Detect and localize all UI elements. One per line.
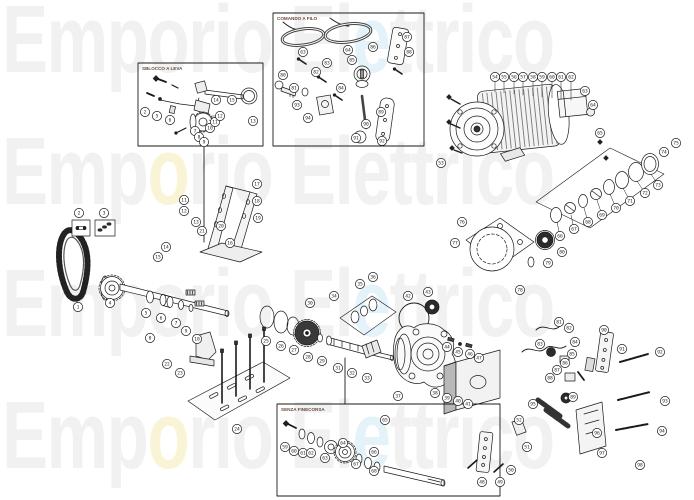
callout-number: 61	[300, 451, 306, 457]
callout-number: 2	[144, 110, 147, 116]
inset-cable-release: COMANDO A FILO	[273, 13, 424, 146]
callout-number: 90	[363, 122, 369, 128]
callout-number: 16	[227, 241, 233, 247]
callout-number: 95	[530, 402, 536, 408]
callout-number: 85	[569, 352, 575, 358]
callout-number: 86	[562, 361, 568, 367]
callout-number: 55	[501, 75, 507, 81]
callout-number: 74	[661, 150, 667, 156]
callout-number: 63	[322, 456, 328, 462]
callout-number: 90	[601, 328, 607, 334]
callout-number: 61	[558, 75, 564, 81]
callout-number: 81	[291, 86, 297, 92]
callout-number: 94	[305, 116, 311, 122]
callout-number: 41	[465, 402, 471, 408]
callout-number: 9	[203, 140, 206, 146]
callout-number: 91	[353, 136, 359, 142]
callout-number: 91	[619, 347, 625, 353]
callout-number: 32	[349, 371, 355, 377]
callout-number: 1	[77, 305, 80, 311]
callout-number: 97	[599, 451, 605, 457]
callout-number: 39	[444, 396, 450, 402]
callout-number: 10	[194, 337, 200, 343]
callout-number: 64	[345, 48, 351, 54]
callout-number: 87	[554, 368, 560, 374]
inset-label-comando: COMANDO A FILO	[277, 16, 318, 21]
callout-number: 88	[406, 50, 412, 56]
callout-number: 7	[175, 321, 178, 327]
callout-number: 56	[511, 75, 517, 81]
callout-number: 34	[331, 294, 337, 300]
callout-number: 73	[655, 183, 661, 189]
gearbox-housing	[362, 300, 455, 387]
callout-number: 71	[627, 199, 633, 205]
callout-number: 6	[160, 316, 163, 322]
callout-number: 64	[590, 103, 596, 109]
callout-number: 52	[516, 418, 522, 424]
callout-number: 48	[479, 480, 485, 486]
bell-cover-and-flange	[466, 218, 555, 271]
callout-number: 2	[78, 211, 81, 217]
callout-number: 13	[193, 220, 199, 226]
inset-label-sblocco: SBLOCCO A LEVA	[142, 66, 183, 71]
callout-number: 15	[229, 98, 235, 104]
callout-number: 72	[642, 191, 648, 197]
callout-number: 17	[254, 182, 260, 188]
roller-chain	[59, 230, 88, 299]
inset-label-finecorsa: SENZA FINECORSA	[281, 407, 325, 412]
callout-number: 68	[371, 469, 377, 475]
callout-number: 54	[492, 75, 498, 81]
callout-number: 29	[319, 359, 325, 365]
callout-number: 38	[432, 391, 438, 397]
callout-number: 33	[364, 376, 370, 382]
callout-number: 82	[313, 70, 319, 76]
callout-number: 62	[568, 75, 574, 81]
callout-number: 15	[155, 255, 161, 261]
callout-number: 57	[520, 75, 526, 81]
callout-number: 84	[572, 340, 578, 346]
callout-number: 6	[169, 118, 172, 124]
callout-number: 66	[371, 450, 377, 456]
callout-number: 87	[404, 35, 410, 41]
callout-number: 88	[547, 376, 553, 382]
callout-number: 78	[517, 288, 523, 294]
callout-number: 53	[438, 161, 444, 167]
callout-number: 11	[212, 120, 218, 126]
callout-number: 18	[254, 199, 260, 205]
callout-number: 82	[566, 326, 572, 332]
callout-number: 63	[582, 89, 588, 95]
callout-number: 76	[459, 220, 465, 226]
callout-number: 42	[405, 294, 411, 300]
callout-number: 5	[145, 311, 148, 317]
callout-number: 96	[594, 431, 600, 437]
callout-number: 66	[557, 234, 563, 240]
callout-number: 31	[335, 366, 341, 372]
callout-number: 83	[537, 342, 543, 348]
callout-number: 13	[250, 119, 256, 125]
callout-number: 59	[539, 75, 545, 81]
callout-number: 50	[508, 468, 514, 474]
callout-number: 45	[455, 350, 461, 356]
callout-number: 37	[395, 394, 401, 400]
callout-number: 23	[177, 371, 183, 377]
callout-number: 36	[370, 275, 376, 281]
callout-number: 35	[357, 282, 363, 288]
callout-number: 14	[213, 98, 219, 104]
callout-number: 3	[103, 211, 106, 217]
callout-number: 44	[444, 345, 450, 351]
callout-number: 28	[305, 355, 311, 361]
callout-number: 80	[559, 250, 565, 256]
callout-number: 94	[659, 429, 665, 435]
callout-number: 81	[556, 320, 562, 326]
callout-number: 67	[353, 462, 359, 468]
callout-number: 69	[599, 213, 605, 219]
callout-number: 11	[181, 198, 187, 204]
callout-number: 40	[455, 399, 461, 405]
callout-number: 89	[570, 395, 576, 401]
callout-number: 98	[637, 463, 643, 469]
callout-number: 19	[255, 216, 261, 222]
callout-number: 49	[497, 480, 503, 486]
callout-number: 24	[234, 427, 240, 433]
callout-number: 67	[571, 227, 577, 233]
callout-number: 20	[218, 224, 224, 230]
callout-number: 68	[585, 220, 591, 226]
callout-number: 58	[530, 75, 536, 81]
callout-number: 60	[291, 449, 297, 455]
exploded-parts-diagram: Emporio ElettricoEmporio ElettricoEmpori…	[0, 0, 694, 500]
callout-number: 30	[307, 301, 313, 307]
callout-number: 60	[549, 75, 555, 81]
callout-number: 4	[109, 301, 112, 307]
callout-number: 79	[545, 261, 551, 267]
diagram-canvas: SBLOCCO A LEVA	[0, 0, 694, 500]
callout-number: 93	[294, 103, 300, 109]
chain-link-detail-boxes	[72, 220, 115, 236]
callout-number: 92	[379, 139, 385, 145]
callout-number: 59	[282, 445, 288, 451]
callout-number: 70	[613, 206, 619, 212]
callout-number: 25	[263, 339, 269, 345]
base-plate	[188, 327, 290, 420]
callout-number: 9	[185, 329, 188, 335]
callout-number: 93	[662, 399, 668, 405]
callout-number: 86	[370, 45, 376, 51]
callout-number: 92	[657, 350, 663, 356]
callout-number: 27	[291, 348, 297, 354]
callout-number: 83	[324, 61, 330, 67]
callout-number: 12	[181, 209, 187, 215]
callout-number: 64	[340, 441, 346, 447]
callout-number: 65	[382, 418, 388, 424]
callout-number: 5	[156, 114, 159, 120]
callout-number: 89	[378, 110, 384, 116]
callout-number: 14	[163, 245, 169, 251]
callout-number: 46	[467, 352, 473, 358]
callout-number: 43	[425, 290, 431, 296]
callout-number: 12	[217, 114, 223, 120]
callout-number: 80	[280, 73, 286, 79]
callout-number: 84	[338, 86, 344, 92]
callout-number: 51	[524, 445, 530, 451]
drive-sprocket-and-shaft	[99, 275, 229, 317]
callout-number: 21	[199, 229, 205, 235]
callout-number: 10	[207, 126, 213, 132]
callout-number: 77	[452, 241, 458, 247]
callout-number: 62	[308, 451, 314, 457]
callout-number: 85	[349, 58, 355, 64]
callout-number: 63	[300, 50, 306, 56]
callout-number: 75	[673, 141, 679, 147]
callout-number: 8	[149, 336, 152, 342]
callout-number: 22	[164, 362, 170, 368]
callout-number: 26	[278, 344, 284, 350]
callout-number: 47	[476, 356, 482, 362]
callout-number: 65	[597, 131, 603, 137]
